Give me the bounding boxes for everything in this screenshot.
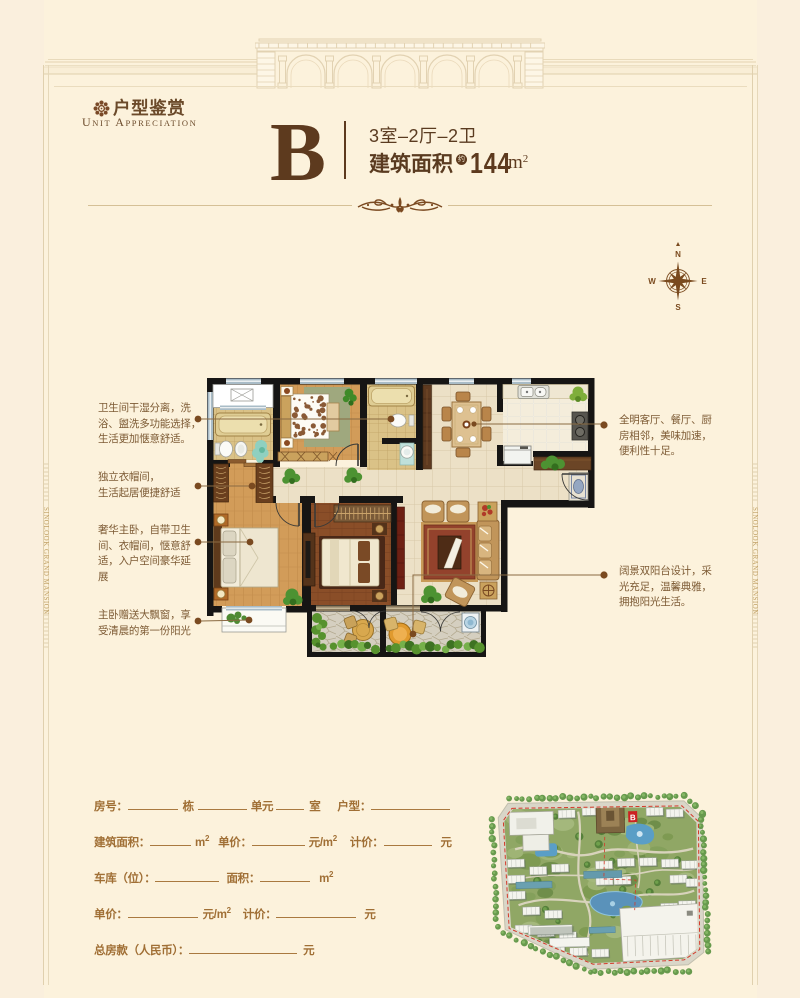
- svg-text:B: B: [630, 813, 636, 822]
